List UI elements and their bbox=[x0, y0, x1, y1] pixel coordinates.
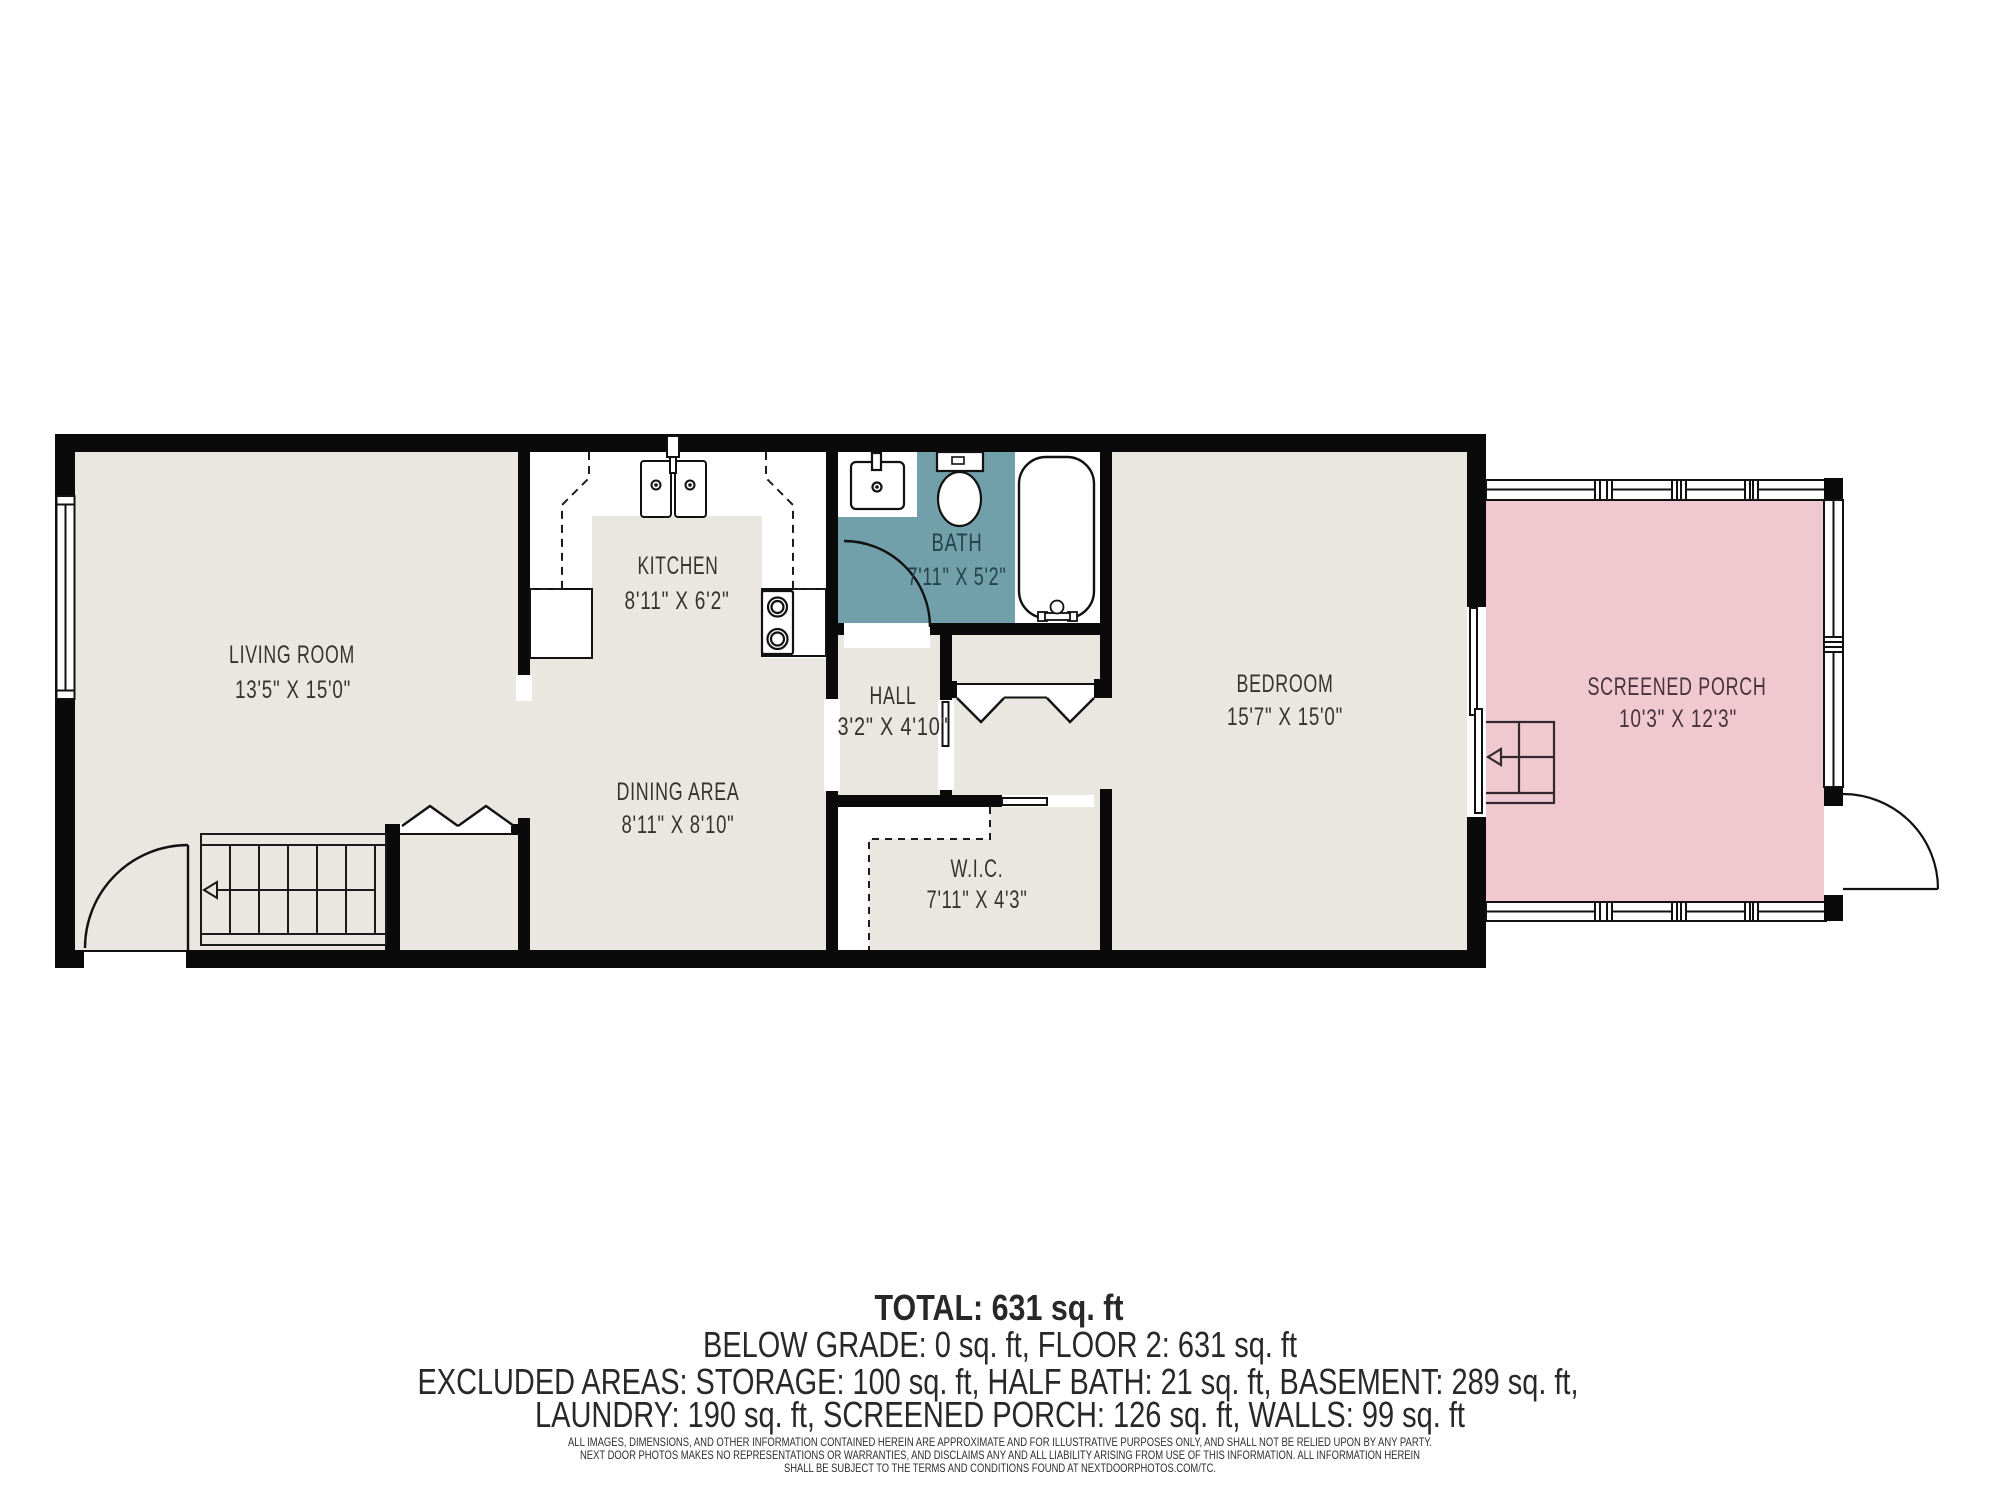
svg-text:3'2" X 4'10": 3'2" X 4'10" bbox=[838, 713, 949, 741]
svg-text:15'7" X 15'0": 15'7" X 15'0" bbox=[1227, 703, 1343, 731]
svg-text:HALL: HALL bbox=[870, 682, 917, 710]
svg-text:7'11" X 4'3": 7'11" X 4'3" bbox=[927, 886, 1028, 914]
svg-text:BEDROOM: BEDROOM bbox=[1237, 670, 1334, 698]
svg-text:SCREENED PORCH: SCREENED PORCH bbox=[1588, 673, 1767, 701]
svg-text:8'11" X 6'2": 8'11" X 6'2" bbox=[625, 587, 730, 615]
svg-text:BELOW GRADE: 0 sq. ft, FLOOR 2: BELOW GRADE: 0 sq. ft, FLOOR 2: 631 sq. … bbox=[703, 1324, 1297, 1365]
svg-text:LAUNDRY: 190 sq. ft, SCREENED: LAUNDRY: 190 sq. ft, SCREENED PORCH: 126… bbox=[535, 1394, 1465, 1435]
svg-text:7'11" X 5'2": 7'11" X 5'2" bbox=[908, 563, 1007, 591]
svg-text:SHALL BE SUBJECT TO THE TERMS: SHALL BE SUBJECT TO THE TERMS AND CONDIT… bbox=[784, 1461, 1216, 1475]
svg-text:BATH: BATH bbox=[932, 529, 983, 557]
svg-text:TOTAL: 631 sq. ft: TOTAL: 631 sq. ft bbox=[875, 1287, 1124, 1328]
svg-text:ALL IMAGES, DIMENSIONS, AND OT: ALL IMAGES, DIMENSIONS, AND OTHER INFORM… bbox=[568, 1435, 1432, 1449]
svg-text:KITCHEN: KITCHEN bbox=[638, 552, 719, 580]
svg-text:10'3" X 12'3": 10'3" X 12'3" bbox=[1619, 705, 1737, 733]
svg-text:13'5" X 15'0": 13'5" X 15'0" bbox=[235, 676, 351, 704]
svg-text:8'11" X 8'10": 8'11" X 8'10" bbox=[622, 811, 735, 839]
svg-text:W.I.C.: W.I.C. bbox=[951, 855, 1004, 883]
svg-text:LIVING ROOM: LIVING ROOM bbox=[229, 641, 355, 669]
svg-text:DINING AREA: DINING AREA bbox=[617, 778, 740, 806]
svg-text:NEXT DOOR PHOTOS MAKES NO REPR: NEXT DOOR PHOTOS MAKES NO REPRESENTATION… bbox=[580, 1448, 1420, 1462]
